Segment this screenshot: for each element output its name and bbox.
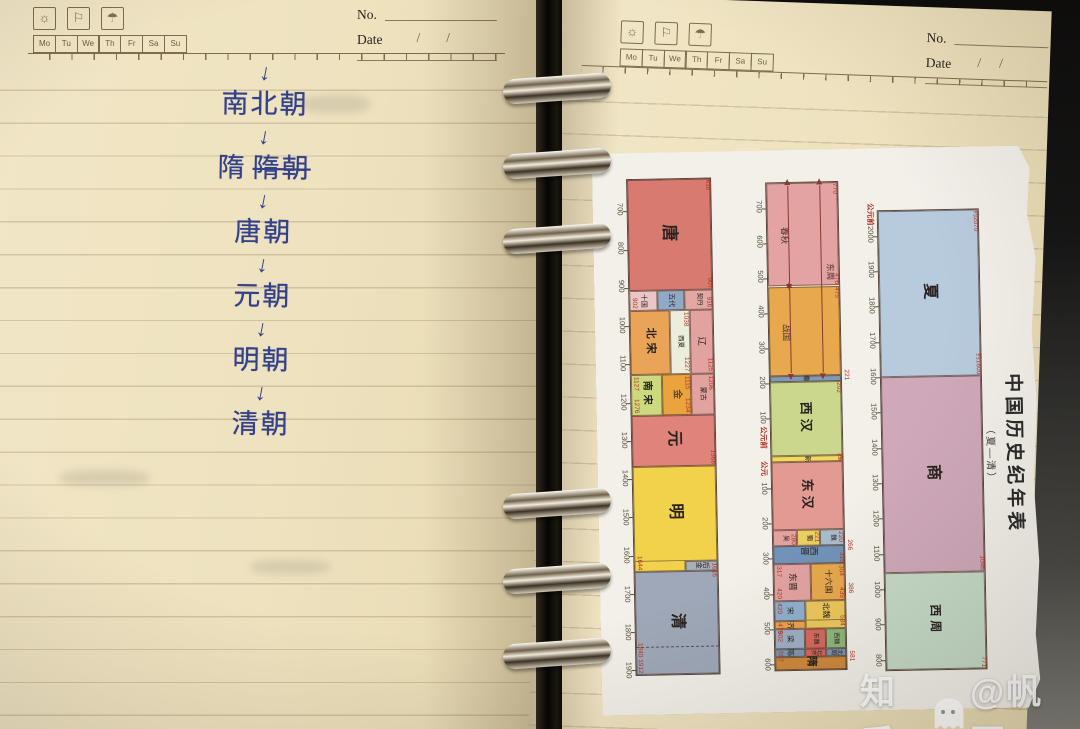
timeline-column-xia-shang-zhou: 公元前2000190018001700160015001400130012001…	[877, 208, 988, 671]
year-label: 220	[836, 531, 843, 542]
axis-tick	[875, 307, 879, 308]
era-name: 十国	[640, 293, 647, 307]
weekday-box: Su	[164, 35, 187, 53]
year-label: 420	[775, 588, 782, 599]
axis-tick	[629, 556, 633, 557]
ink-bleed-smudge	[250, 560, 330, 574]
weekday-box: We	[77, 35, 100, 53]
era-name: 夏	[921, 283, 937, 303]
zhihu-ghost-icon	[928, 695, 968, 729]
era-row: 清1840 1912	[635, 571, 720, 675]
era-row: 南宋11271276金11151234蒙古1206	[631, 373, 715, 416]
era-row: 明	[633, 465, 718, 561]
axis-tick	[880, 589, 884, 590]
chart-title: 中国历史纪年表	[1001, 357, 1032, 549]
year-label: 502	[776, 631, 783, 642]
axis-tick	[764, 348, 768, 349]
era-row: 隋	[775, 656, 846, 670]
axis-tick	[875, 342, 879, 343]
axis-tick	[879, 519, 883, 520]
era-name: 齐	[786, 621, 794, 629]
no-field: No.	[357, 6, 497, 21]
axis-tick	[625, 326, 629, 327]
weekday-box: Tu	[641, 49, 665, 68]
handwritten-line: 南北朝	[140, 87, 390, 121]
era-block: 商	[881, 375, 985, 573]
axis-tick	[764, 313, 768, 314]
year-label: 1644	[635, 556, 642, 571]
era-name: 明	[667, 503, 683, 523]
axis-tick	[630, 594, 634, 595]
year-label: 1616	[710, 562, 717, 577]
sun-icon: ☼	[33, 7, 56, 30]
era-block: 南宋11271276	[631, 374, 662, 416]
date-slash: /	[977, 55, 981, 71]
year-label: 770	[831, 183, 838, 194]
year-label: 534	[838, 615, 845, 626]
flag-icon: ⚐	[67, 7, 90, 30]
axis-tick	[762, 243, 766, 244]
no-label: No.	[357, 8, 377, 22]
axis-tick	[766, 418, 770, 419]
axis-tick	[768, 559, 772, 560]
era-row: 梁502东魏西魏	[775, 628, 846, 649]
era-block: 元	[632, 414, 716, 467]
era-block: 隋	[775, 656, 846, 670]
year-label: 221	[813, 532, 820, 543]
axis-tick	[770, 664, 774, 665]
era-block: 西晋	[773, 545, 844, 564]
axis-tick	[879, 554, 883, 555]
era-name: 西周	[929, 605, 942, 637]
period-name: 战国	[780, 324, 792, 341]
spiral-spine	[536, 0, 562, 729]
era-name: 北宋	[644, 327, 656, 357]
era-row: 十国902五代契丹916	[629, 289, 712, 311]
era-name: 北魏	[821, 602, 829, 618]
era-name: 南宋	[641, 381, 652, 409]
history-timeline-chart-paper: 7008009001000110012001300140015001600170…	[592, 145, 1045, 715]
year-label: 317	[775, 567, 782, 578]
era-row: 475	[768, 286, 841, 376]
weekday-box: Tu	[55, 35, 78, 53]
era-name: 辽	[697, 337, 706, 346]
era-block: 金11151234	[661, 374, 691, 415]
era-row: 宋420北魏	[774, 600, 845, 622]
year-label: 916	[705, 296, 712, 307]
date-field: Date / /	[357, 30, 497, 61]
year-label: 221	[843, 369, 850, 380]
umbrella-icon: ☂	[688, 23, 712, 47]
era-name: 东魏	[812, 632, 818, 644]
era-name: 清	[669, 613, 685, 633]
axis-tick	[873, 236, 877, 237]
timeline-column-tang-to-qing: 7008009001000110012001300140015001600170…	[626, 177, 721, 676]
planner-icons-row: ☼⚐☂	[33, 7, 124, 30]
year-label: 386	[847, 582, 854, 593]
crossed-out-text: 隋朝	[252, 153, 310, 184]
axis-tick	[626, 403, 630, 404]
era-row: 吴280蜀221魏220	[773, 529, 844, 546]
era-name: 宋	[786, 607, 794, 615]
year-label: 420	[775, 603, 782, 614]
era-name: 梁	[786, 635, 794, 643]
era-row: 西汉202	[770, 381, 842, 456]
handwritten-down-arrow: ↓	[137, 227, 388, 302]
handwritten-down-arrow: ↓	[136, 291, 387, 366]
era-block: 西夏10381227	[669, 310, 690, 374]
weekday-row: MoTuWeThFrSaSu	[33, 35, 186, 53]
era-row: 西周771	[885, 571, 987, 670]
era-name: 十六国	[824, 570, 832, 594]
year-label: 476	[832, 273, 839, 284]
era-name: 陈	[786, 649, 794, 657]
era-block: 夏	[878, 209, 981, 377]
era-block: 魏220	[820, 529, 844, 546]
sun-icon: ☼	[620, 20, 644, 44]
timeline-band: 770476475秦西汉202新925东汉吴280蜀221魏220西晋316东晋…	[765, 181, 847, 671]
era-block: 辽1125	[689, 309, 714, 373]
era-name: 魏	[829, 534, 836, 541]
umbrella-icon: ☂	[101, 7, 124, 30]
era-name: 西晋	[800, 547, 818, 563]
no-field: No.	[926, 29, 1048, 48]
handwritten-down-arrow: ↓	[136, 355, 387, 430]
weekday-box: Fr	[707, 51, 731, 70]
axis-tick-label: 600	[763, 658, 771, 673]
era-block	[768, 286, 841, 376]
era-block: 宋420	[774, 600, 806, 621]
axis-tick-label: 公元前	[759, 427, 767, 452]
axis-tick	[876, 377, 880, 378]
no-blank-line	[954, 30, 1049, 48]
notebook-photo: ☼⚐☂ MoTuWeThFrSaSu No. Date / / ↓南北朝↓隋隋朝…	[0, 0, 1080, 729]
era-row: 西晋316	[773, 545, 844, 564]
axis-tick	[632, 670, 636, 671]
era-block: 东魏	[805, 629, 826, 649]
handwritten-line: 明朝	[136, 343, 386, 377]
weekday-box: Sa	[729, 52, 753, 71]
date-label: Date	[357, 33, 382, 47]
weekday-box: Sa	[142, 35, 165, 53]
weekday-box: Mo	[33, 35, 56, 53]
handwritten-line: 隋隋朝	[139, 151, 389, 185]
axis-tick	[623, 250, 627, 251]
year-label: 266	[846, 540, 853, 551]
watermark-handle: @帆哥	[970, 664, 1080, 729]
year-label: 618	[704, 180, 711, 191]
axis-tick	[874, 271, 878, 272]
handwritten-down-arrow: ↓	[138, 163, 389, 238]
era-block: 十国902	[629, 290, 657, 311]
era-row: 北宋西夏10381227辽1125	[630, 309, 714, 374]
era-row: 东汉	[772, 461, 844, 531]
era-row: 商1046	[881, 375, 985, 573]
watermark-brand: 知乎	[860, 664, 934, 729]
era-block: 吴280	[773, 530, 797, 547]
axis-tick	[763, 278, 767, 279]
right-notebook-page: ☼⚐☂ MoTuWeThFrSaSu No. Date / / 70080090…	[528, 0, 1052, 729]
handwritten-line: 唐朝	[138, 215, 388, 249]
era-block: 蒙古1206	[690, 373, 714, 414]
handwritten-notes: ↓南北朝↓隋隋朝↓唐朝↓元朝↓明朝↓清朝	[135, 56, 390, 443]
era-block: 契丹916	[685, 289, 713, 310]
year-label: 约1600	[974, 353, 981, 374]
year-label: 1127	[632, 377, 639, 391]
year-label: 1038	[682, 312, 689, 327]
date-slash: /	[416, 30, 420, 46]
era-name: 唐	[661, 224, 678, 245]
era-name: 元	[665, 430, 681, 450]
watermark: 知乎 @帆哥	[860, 664, 1080, 729]
timeline-band: 唐618907十国902五代契丹916北宋西夏10381227辽1125南宋11…	[626, 177, 721, 676]
year-label: 1227	[683, 357, 690, 372]
era-block: 东汉	[772, 461, 844, 531]
year-label: 约2070	[971, 210, 978, 231]
era-block: 蜀221	[797, 530, 821, 547]
year-label: 581	[848, 650, 855, 661]
handwritten-line: 元朝	[137, 279, 387, 313]
left-notebook-page: ☼⚐☂ MoTuWeThFrSaSu No. Date / / ↓南北朝↓隋隋朝…	[0, 0, 541, 729]
year-label: 1276	[632, 399, 639, 414]
axis-tick-label: 公元前	[866, 203, 874, 228]
axis-tick	[768, 524, 772, 525]
era-block: 西汉	[770, 381, 842, 456]
year-label: 316	[838, 552, 845, 563]
era-block: 北宋	[630, 310, 671, 375]
era-name: 西汉	[799, 402, 813, 436]
era-name: 五代	[667, 293, 674, 307]
ink-bleed-smudge	[60, 470, 150, 486]
axis-tick	[767, 489, 771, 490]
year-label: 557	[776, 651, 783, 662]
axis-tick	[881, 660, 885, 661]
year-label: 25	[836, 453, 843, 460]
date-slash: /	[999, 56, 1003, 72]
year-label: 475	[833, 287, 840, 298]
era-block: 明	[633, 465, 718, 561]
date-slash: /	[446, 30, 450, 46]
no-blank-line	[385, 6, 497, 21]
axis-tick	[627, 441, 631, 442]
axis-tick	[628, 479, 632, 480]
era-name: 隋	[805, 656, 816, 671]
year-label: 1368	[709, 450, 716, 465]
era-name: 蜀	[805, 535, 812, 542]
handwritten-down-arrow: ↓	[139, 99, 390, 174]
era-block: 西魏	[825, 628, 846, 648]
axis-tick	[881, 625, 885, 626]
era-name: 西魏	[833, 632, 839, 644]
planner-icons-row: ☼⚐☂	[620, 20, 712, 46]
era-block: 东晋317420	[773, 564, 811, 601]
year-label: 1125	[706, 357, 713, 371]
flag-icon: ⚐	[654, 22, 678, 46]
chart-subtitle: （夏—清）	[983, 358, 1002, 550]
year-label: 202	[835, 382, 842, 393]
era-block: 西周	[885, 571, 987, 670]
year-label: 1234	[683, 398, 690, 413]
date-label: Date	[926, 56, 952, 70]
axis-tick	[877, 413, 881, 414]
era-name: 西夏	[676, 335, 683, 348]
chart-title-block: 中国历史纪年表 （夏—清）	[983, 357, 1032, 550]
year-label: 304	[837, 565, 844, 576]
weekday-box: We	[663, 50, 687, 69]
axis-tick	[878, 483, 882, 484]
era-block: 清	[635, 571, 720, 675]
year-label: 1046	[978, 556, 985, 571]
handwritten-line: 清朝	[135, 407, 385, 441]
axis-tick-label: 1900	[624, 662, 632, 681]
era-block: 五代	[657, 290, 685, 311]
weekday-box: Su	[750, 53, 774, 72]
era-name: 蒙古	[699, 387, 706, 401]
axis-tick	[624, 288, 628, 289]
weekday-box: Th	[98, 35, 121, 53]
weekday-box: Mo	[620, 48, 644, 67]
era-name: 吴	[782, 535, 789, 542]
header-ruler-line	[28, 53, 505, 60]
era-row: 唐618907	[627, 179, 712, 291]
axis-tick	[629, 517, 633, 518]
era-row: 东晋317420十六国304439	[773, 563, 845, 600]
year-label: 1206	[706, 375, 713, 390]
year-label: 1840 1912	[636, 643, 643, 674]
axis-tick	[877, 448, 881, 449]
period-name: 春秋	[778, 227, 790, 244]
ink-bleed-smudge	[300, 95, 370, 113]
year-label: 439	[837, 587, 844, 598]
era-name: 北周	[830, 649, 842, 656]
ruled-lines	[0, 58, 541, 729]
axis-tick-label: 公元	[760, 461, 768, 478]
era-block: 十六国304439	[810, 563, 845, 600]
axis-tick	[623, 211, 627, 212]
era-row: 元1368	[632, 414, 716, 467]
axis-tick	[762, 208, 766, 209]
weekday-box: Fr	[120, 35, 143, 53]
year-label: 1115	[683, 376, 690, 390]
era-name: 东晋	[788, 573, 797, 591]
era-name: 金	[671, 389, 681, 399]
weekday-box: Th	[685, 51, 709, 70]
year-label: 902	[630, 298, 637, 309]
axis-tick	[770, 629, 774, 630]
era-block: 梁502	[775, 629, 806, 649]
date-blank-line	[357, 46, 497, 61]
timeline-column-zhou-to-sui: 700600500400300200100公元前公元10020030040050…	[765, 181, 847, 671]
axis-tick	[626, 364, 630, 365]
handwritten-down-arrow: ↓	[140, 35, 391, 110]
era-row: 夏约2070约1600	[878, 209, 981, 377]
era-name: 东汉	[801, 479, 815, 513]
era-name: 契丹	[695, 293, 702, 306]
axis-tick	[631, 632, 635, 633]
no-label: No.	[926, 31, 946, 45]
axis-tick	[769, 594, 773, 595]
year-label: 907	[705, 277, 712, 288]
year-label: 280	[789, 534, 796, 545]
era-block: 后金1616	[686, 560, 718, 571]
timeline-band: 夏约2070约1600商1046西周771	[877, 208, 988, 671]
axis-tick	[765, 383, 769, 384]
era-name: 商	[925, 464, 941, 484]
era-block: 唐	[627, 179, 712, 291]
era-name: 后金	[695, 561, 709, 570]
